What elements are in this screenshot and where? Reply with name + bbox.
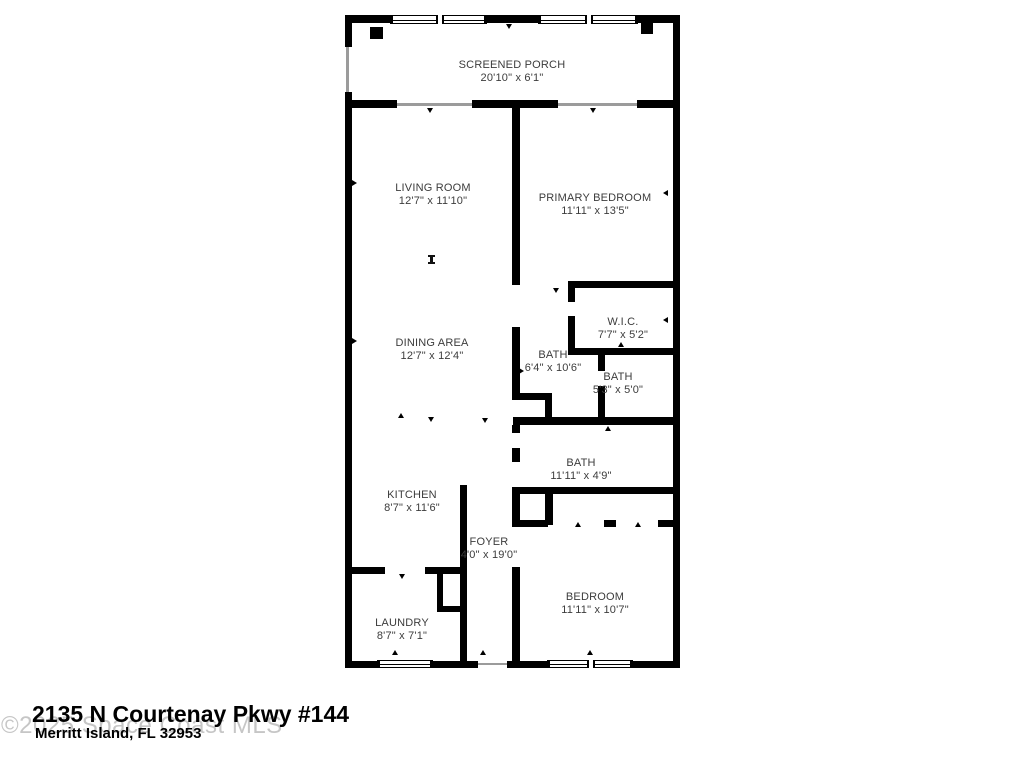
door-tick [587, 650, 593, 655]
wall [437, 606, 465, 612]
wall [345, 567, 385, 574]
room-dims: 8'7" x 7'1" [375, 630, 429, 643]
door-tick [482, 418, 488, 423]
wall [568, 288, 575, 302]
door-tick [427, 108, 433, 113]
screen-line [397, 103, 472, 106]
door-tick [519, 368, 524, 374]
room-name: BATH [593, 371, 643, 384]
room-label-laundry: LAUNDRY 8'7" x 7'1" [375, 617, 429, 643]
room-name: KITCHEN [384, 489, 440, 502]
door-tick [480, 650, 486, 655]
wall [658, 520, 680, 527]
wall [487, 15, 538, 23]
room-name: PRIMARY BEDROOM [539, 192, 652, 205]
window-mid-line [380, 664, 430, 665]
wall-post [641, 23, 653, 34]
room-name: LIVING ROOM [395, 182, 471, 195]
room-name: DINING AREA [395, 337, 468, 350]
wall [512, 425, 520, 433]
room-label-primary-bedroom: PRIMARY BEDROOM 11'11" x 13'5" [539, 192, 652, 218]
wall [633, 661, 680, 668]
window-mullion [585, 15, 593, 24]
wall [345, 100, 397, 108]
door-tick [663, 317, 668, 323]
screen-line [346, 47, 349, 92]
plan-symbol-bar [428, 262, 435, 264]
wall [345, 15, 352, 47]
wall [512, 448, 520, 462]
window [377, 660, 433, 668]
wall [673, 15, 680, 668]
wall [512, 567, 520, 668]
door-tick [635, 522, 641, 527]
room-dims: 7'7" x 5'2" [598, 329, 648, 342]
wall [604, 520, 616, 527]
window [538, 15, 638, 24]
room-name: SCREENED PORCH [459, 59, 566, 72]
room-name: BATH [550, 457, 611, 470]
wall [345, 661, 377, 668]
room-label-bedroom: BEDROOM 11'11" x 10'7" [561, 591, 629, 617]
door-tick [352, 338, 357, 344]
room-label-living-room: LIVING ROOM 12'7" x 11'10" [395, 182, 471, 208]
wall [512, 327, 520, 400]
room-label-screened-porch: SCREENED PORCH 20'10" x 6'1" [459, 59, 566, 85]
room-dims: 12'7" x 12'4" [395, 350, 468, 363]
window [547, 660, 633, 668]
wall [433, 661, 478, 668]
door-tick [590, 108, 596, 113]
window [390, 15, 487, 24]
wall [545, 494, 553, 525]
wall [425, 567, 467, 574]
wall [345, 92, 352, 668]
door-tick [553, 288, 559, 293]
wall [568, 281, 673, 288]
room-name: FOYER [461, 536, 518, 549]
address-line2: Merritt Island, FL 32953 [35, 725, 201, 742]
room-label-bath-2: BATH 5'3" x 5'0" [593, 371, 643, 397]
door-tick [399, 574, 405, 579]
wall [598, 355, 605, 371]
window-mullion [436, 15, 444, 24]
room-dims: 20'10" x 6'1" [459, 72, 566, 85]
room-label-wic: W.I.C. 7'7" x 5'2" [598, 316, 648, 342]
room-label-kitchen: KITCHEN 8'7" x 11'6" [384, 489, 440, 515]
door-tick [428, 417, 434, 422]
wall [637, 100, 680, 108]
room-name: BATH [525, 349, 582, 362]
wall [513, 417, 680, 425]
wall [568, 348, 673, 355]
wall [512, 100, 520, 285]
screen-line [558, 103, 637, 106]
door-tick [352, 180, 357, 186]
wall-post [370, 27, 383, 39]
address-line1: 2135 N Courtenay Pkwy #144 [32, 701, 349, 728]
room-label-foyer: FOYER 4'0" x 19'0" [461, 536, 518, 562]
room-dims: 11'11" x 10'7" [561, 604, 629, 617]
room-dims: 6'4" x 10'6" [525, 362, 582, 375]
screen-line [478, 663, 507, 665]
plan-symbol [428, 255, 435, 264]
door-tick [506, 24, 512, 29]
room-dims: 5'3" x 5'0" [593, 384, 643, 397]
wall [512, 520, 548, 527]
door-tick [392, 650, 398, 655]
room-name: BEDROOM [561, 591, 629, 604]
wall [512, 487, 680, 494]
room-dims: 8'7" x 11'6" [384, 502, 440, 515]
room-name: W.I.C. [598, 316, 648, 329]
floor-plan: SCREENED PORCH 20'10" x 6'1" LIVING ROOM… [0, 0, 1024, 768]
door-tick [575, 522, 581, 527]
room-label-bath-3: BATH 11'11" x 4'9" [550, 457, 611, 483]
wall [460, 485, 467, 668]
room-dims: 4'0" x 19'0" [461, 549, 518, 562]
room-name: LAUNDRY [375, 617, 429, 630]
room-dims: 11'11" x 13'5" [539, 205, 652, 218]
door-tick [605, 426, 611, 431]
room-label-bath-1: BATH 6'4" x 10'6" [525, 349, 582, 375]
room-label-dining-area: DINING AREA 12'7" x 12'4" [395, 337, 468, 363]
room-dims: 11'11" x 4'9" [550, 470, 611, 483]
door-tick [398, 413, 404, 418]
door-tick [663, 190, 668, 196]
window-mullion [587, 660, 595, 668]
room-dims: 12'7" x 11'10" [395, 195, 471, 208]
door-tick [618, 342, 624, 347]
